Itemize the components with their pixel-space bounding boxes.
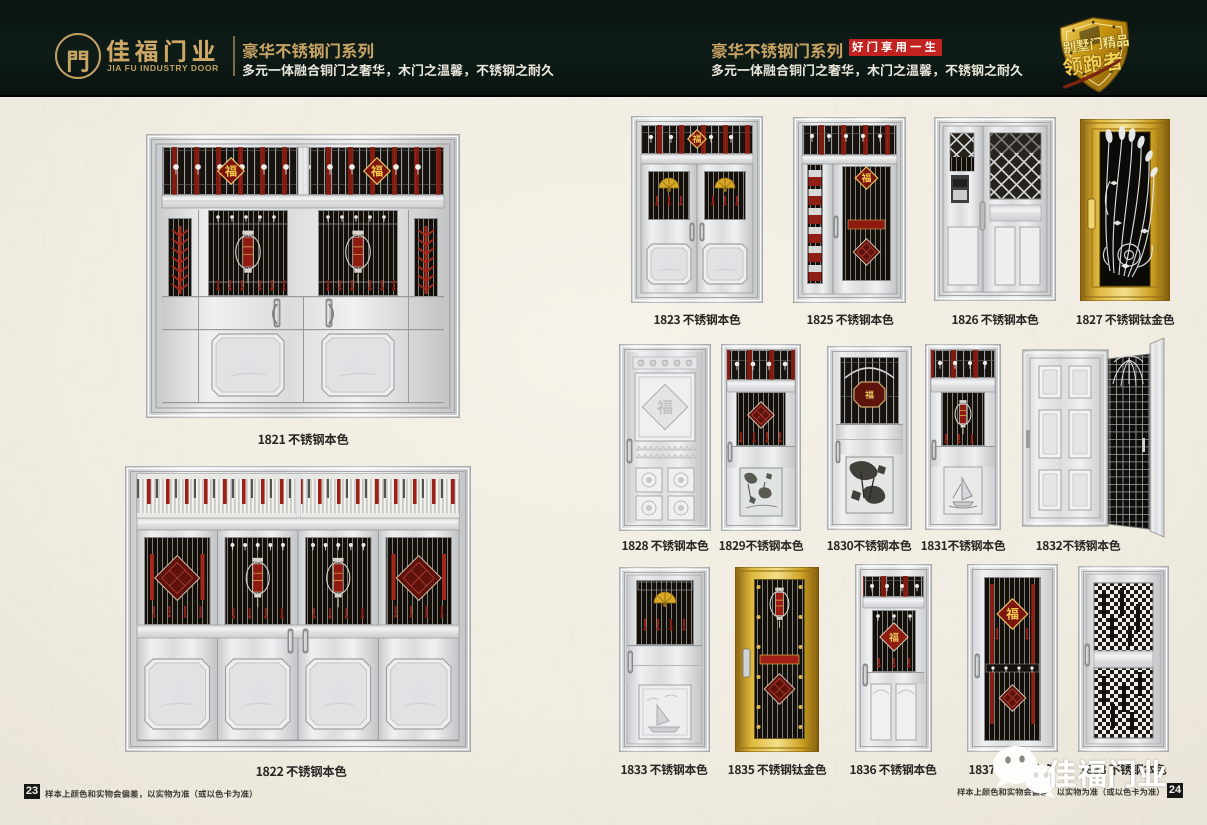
svg-text:福: 福 [862, 170, 872, 185]
svg-text:福: 福 [865, 388, 874, 401]
svg-text:福: 福 [889, 629, 899, 644]
svg-text:福: 福 [371, 161, 383, 179]
svg-text:福: 福 [1006, 604, 1019, 623]
svg-text:福: 福 [225, 161, 237, 179]
svg-text:福: 福 [692, 132, 701, 145]
svg-text:福: 福 [657, 394, 673, 418]
